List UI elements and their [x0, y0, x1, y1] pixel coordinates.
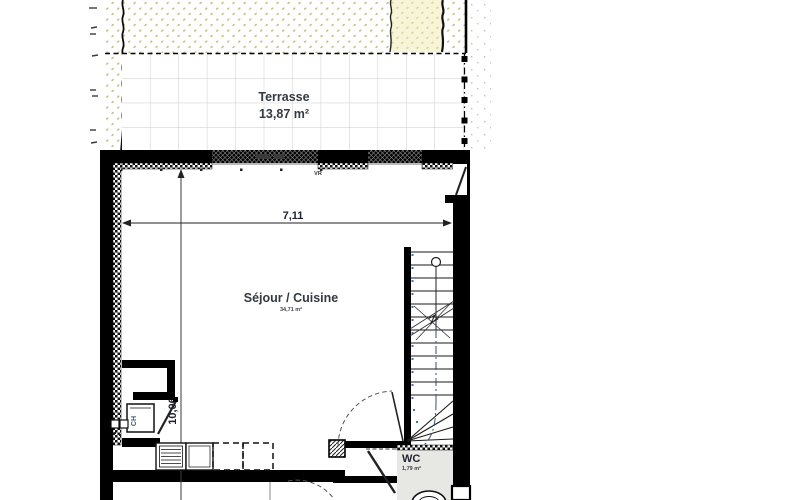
living-room: Séjour / Cuisine 34,71 m² VR: [244, 171, 339, 313]
stair-break-line: [410, 301, 454, 340]
pier: [329, 440, 345, 457]
terrace-area-label: 13,87 m²: [259, 107, 309, 121]
winder-steps: [407, 401, 453, 441]
living-label: Séjour / Cuisine: [244, 291, 339, 305]
ch-label: CH: [131, 416, 138, 426]
boundary-tick-marks: [89, 8, 98, 143]
floor-plan: Terrasse 13,87 m²: [0, 0, 800, 500]
floor-plan-canvas: Terrasse 13,87 m²: [0, 0, 800, 500]
terrace-area: Terrasse 13,87 m²: [105, 53, 468, 152]
wc-door-leaf: [368, 451, 395, 493]
kitchen-sink: [156, 443, 186, 470]
stair-start-circle: [432, 258, 441, 267]
width-dimension: 7,11: [283, 210, 304, 222]
shutter-label: VR: [314, 171, 322, 177]
kitchen-counter: [156, 443, 273, 470]
living-area-label: 34,71 m²: [280, 306, 302, 313]
window: [368, 150, 422, 163]
wc-area-label: 1,79 m²: [402, 465, 421, 472]
wc-label: WC: [402, 453, 420, 465]
terrace-label: Terrasse: [258, 90, 309, 104]
stairs: [404, 247, 454, 455]
